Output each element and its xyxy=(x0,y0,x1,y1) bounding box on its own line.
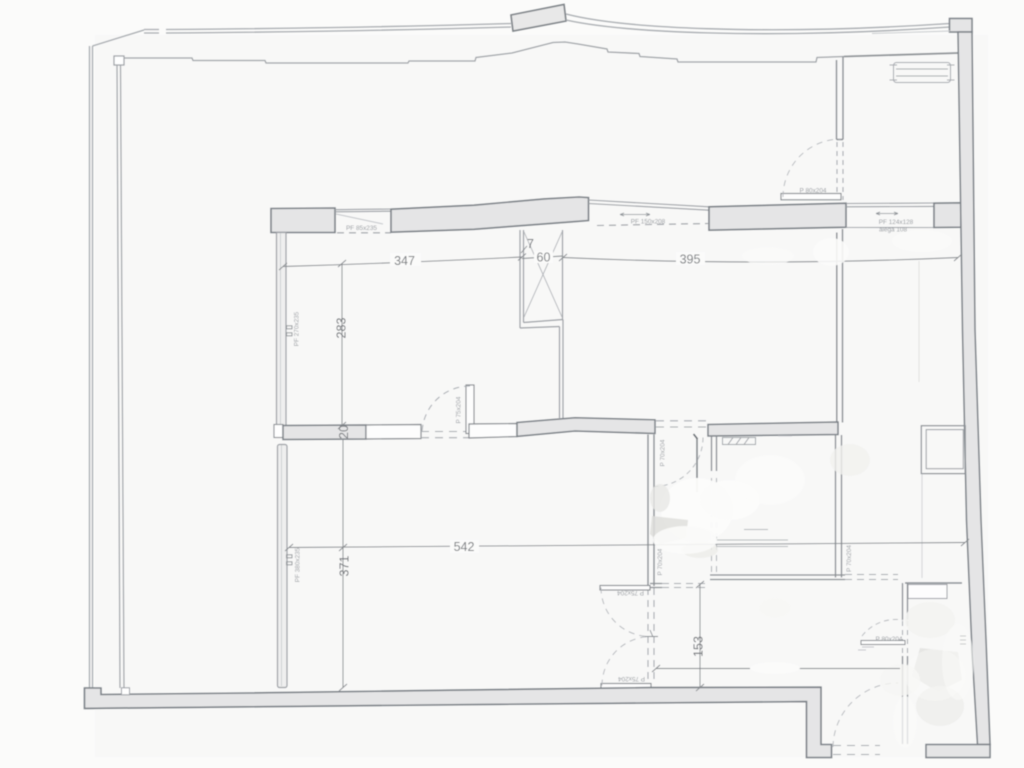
svg-text:60: 60 xyxy=(537,251,551,265)
svg-text:P 75x204: P 75x204 xyxy=(617,589,644,596)
svg-text:PF 270x235: PF 270x235 xyxy=(294,311,301,346)
svg-text:347: 347 xyxy=(394,254,415,268)
svg-text:PF 150x208: PF 150x208 xyxy=(631,219,666,226)
svg-text:PF 380x235: PF 380x235 xyxy=(295,547,302,582)
svg-text:20: 20 xyxy=(337,425,351,439)
svg-text:7: 7 xyxy=(527,237,534,251)
svg-text:153: 153 xyxy=(692,636,706,657)
svg-text:P 70x204: P 70x204 xyxy=(657,548,664,575)
svg-text:PF 85x235: PF 85x235 xyxy=(346,225,377,232)
svg-text:P 80x204: P 80x204 xyxy=(876,636,903,643)
svg-text:395: 395 xyxy=(680,253,701,267)
svg-text:542: 542 xyxy=(454,540,475,554)
svg-text:P 70x204: P 70x204 xyxy=(846,545,853,572)
svg-text:P 80x204: P 80x204 xyxy=(800,188,827,195)
svg-text:P 75x204: P 75x204 xyxy=(456,396,463,423)
svg-text:283: 283 xyxy=(335,318,349,339)
svg-text:P 75x204: P 75x204 xyxy=(618,675,645,682)
svg-text:P 70x204: P 70x204 xyxy=(660,439,667,466)
svg-text:371: 371 xyxy=(338,556,352,577)
svg-text:PF 124x128: PF 124x128 xyxy=(879,219,914,226)
